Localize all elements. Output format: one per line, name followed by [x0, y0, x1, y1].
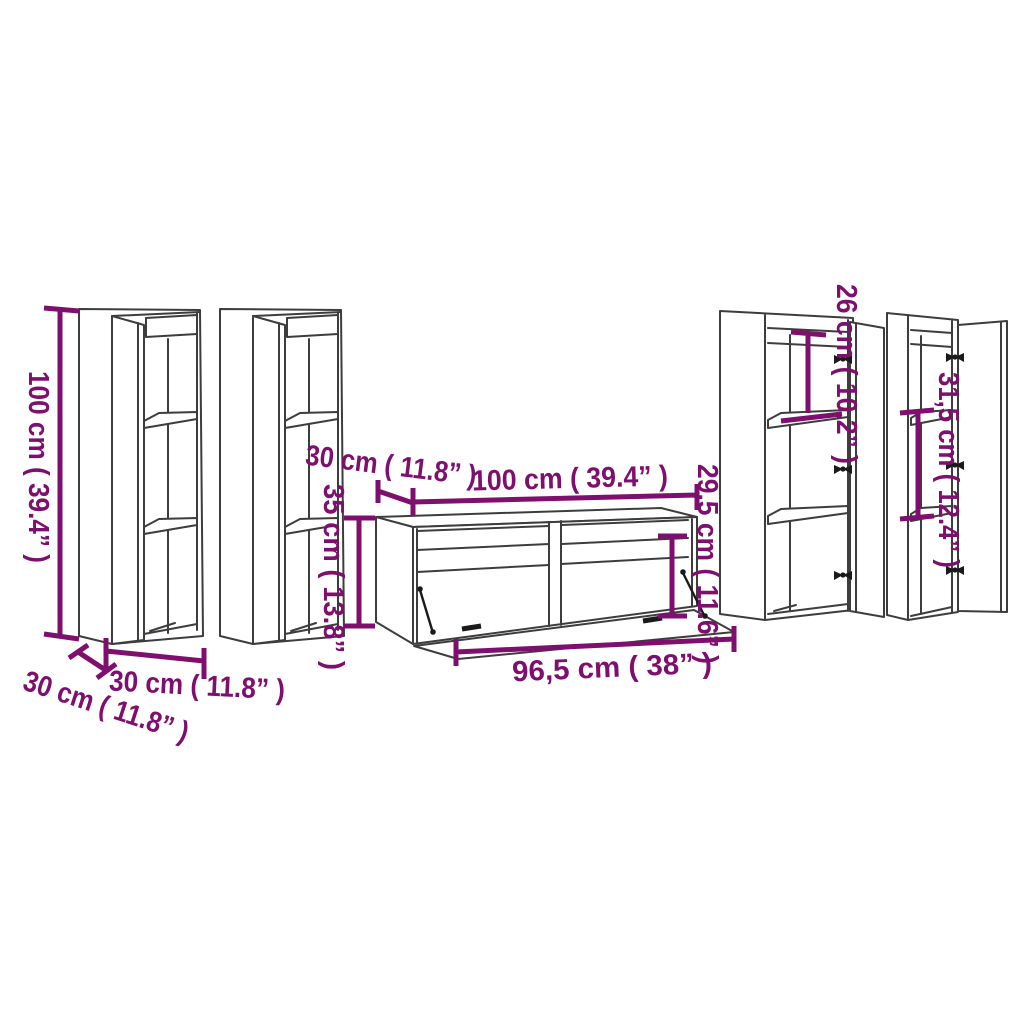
diagram-canvas: 100 cm ( 39.4” ) 30 cm ( 11.8” ) 30 cm (…: [0, 0, 1024, 1024]
dimension-label: 100 cm ( 39.4” ): [472, 460, 669, 497]
dim-tv-stand-height: 35 cm ( 13.8” ): [317, 484, 375, 670]
dimension-label: 26 cm ( 10.2” ): [830, 284, 862, 464]
stay-pivot: [430, 629, 436, 635]
flap-handle: [462, 626, 481, 629]
stay-pivot: [417, 586, 423, 592]
left-side-panel: [376, 517, 413, 644]
open-door-panel: [112, 316, 144, 644]
dimension-label: 100 cm ( 39.4” ): [22, 371, 54, 563]
tall-wall-cabinet-1: [79, 309, 203, 644]
dimension-label: 29,5 cm ( 11.6” ): [691, 464, 723, 664]
dimension-label: 35 cm ( 13.8” ): [317, 484, 349, 670]
dimension-label: 31,5 cm ( 12.4” ): [932, 372, 964, 568]
product-dimension-diagram: 100 cm ( 39.4” ) 30 cm ( 11.8” ) 30 cm (…: [0, 0, 1024, 1024]
dim-tall-cabinet-width: 30 cm ( 11.8” ): [106, 638, 286, 707]
dimension-label: 96,5 cm ( 38” ): [511, 648, 712, 689]
tv-stand: [376, 508, 734, 659]
dim-tall-cabinet-height: 100 cm ( 39.4” ): [22, 308, 79, 639]
stay-pivot: [680, 569, 686, 575]
open-door-panel: [958, 321, 1007, 612]
